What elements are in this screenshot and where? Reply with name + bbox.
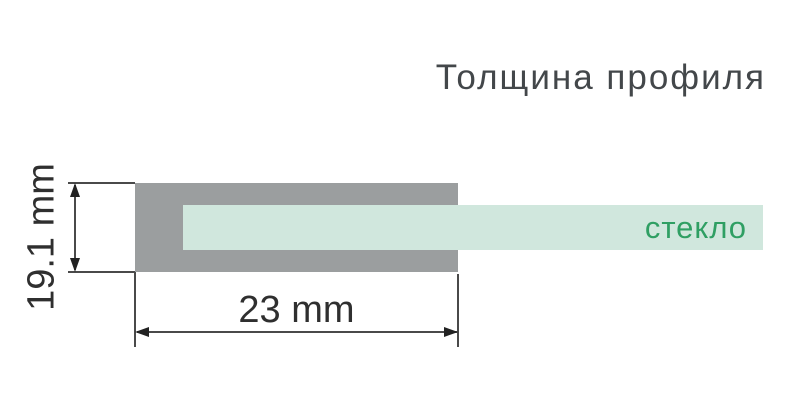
height-dimension-label: 19.1 mm [21, 163, 64, 311]
page-title: Толщина профиля [436, 58, 766, 98]
glass-label: стекло [645, 210, 747, 246]
profile-thickness-diagram: Толщина профиля стекло 19.1 mm 23 mm [0, 0, 800, 413]
glass-strip: стекло [183, 205, 763, 250]
arrow-up-icon [70, 183, 80, 197]
width-dimension-label: 23 mm [135, 289, 458, 332]
arrow-down-icon [70, 258, 80, 272]
